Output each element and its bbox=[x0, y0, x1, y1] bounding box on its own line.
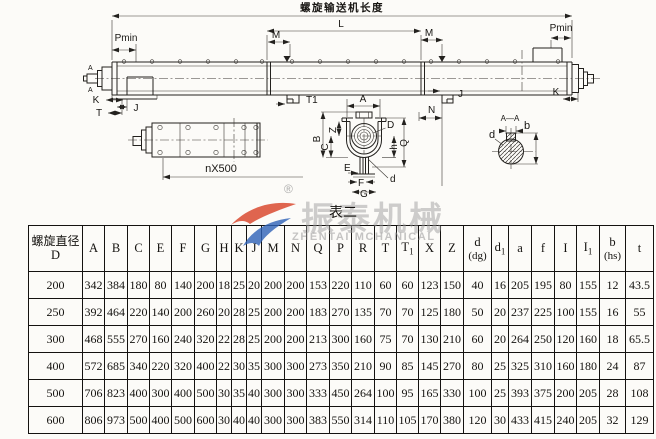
cell: 60 bbox=[464, 326, 492, 353]
cell: 20 bbox=[492, 326, 509, 353]
cell: 200 bbox=[172, 299, 195, 326]
col-header-F: F bbox=[172, 226, 195, 272]
table-row: 3004685552701602403202228252002002133001… bbox=[29, 326, 654, 353]
cell: 555 bbox=[105, 326, 128, 353]
weld-marker bbox=[439, 56, 446, 62]
table-row: 6008069735004005006003040403003003835503… bbox=[29, 407, 654, 434]
cell: 80 bbox=[464, 353, 492, 380]
cell: 160 bbox=[555, 353, 577, 380]
cell: 20 bbox=[217, 299, 232, 326]
cell: 60 bbox=[397, 272, 419, 299]
cell: 70 bbox=[397, 299, 419, 326]
cell: 205 bbox=[577, 380, 600, 407]
cell: 30 bbox=[217, 407, 232, 434]
cell: 108 bbox=[626, 380, 654, 407]
col-header-t: t bbox=[626, 226, 654, 272]
cell: 270 bbox=[330, 299, 352, 326]
cell: 30 bbox=[232, 353, 247, 380]
cell: 320 bbox=[195, 326, 217, 353]
col-header-A: A bbox=[83, 226, 105, 272]
shaft-section-detail: A—A b d bbox=[489, 114, 538, 170]
cell: 40 bbox=[247, 407, 262, 434]
cell: 90 bbox=[375, 353, 397, 380]
col-header-N: N bbox=[285, 226, 307, 272]
cell: 40 bbox=[464, 272, 492, 299]
cell: 105 bbox=[397, 407, 419, 434]
cell: 28 bbox=[600, 380, 626, 407]
cell: 264 bbox=[352, 380, 375, 407]
cell: 220 bbox=[150, 353, 172, 380]
cell: 600 bbox=[195, 407, 217, 434]
dim-pmin-right-label: Pmin bbox=[550, 23, 573, 34]
cell: 823 bbox=[105, 380, 128, 407]
section-cut-A-label: A bbox=[88, 87, 93, 94]
cell: 16 bbox=[600, 299, 626, 326]
cell: 393 bbox=[509, 380, 532, 407]
cell: 380 bbox=[441, 407, 464, 434]
cell: 685 bbox=[105, 353, 128, 380]
cell: 120 bbox=[555, 326, 577, 353]
dim-d-label: d bbox=[489, 129, 495, 141]
cell: 500 bbox=[128, 407, 150, 434]
cell: 300 bbox=[150, 380, 172, 407]
cell: 237 bbox=[509, 299, 532, 326]
cell: 325 bbox=[509, 353, 532, 380]
cell: 95 bbox=[397, 380, 419, 407]
cell: 400 bbox=[150, 407, 172, 434]
dim-C-label: C bbox=[320, 143, 331, 150]
cell: 140 bbox=[172, 272, 195, 299]
cell: 300 bbox=[262, 407, 285, 434]
cell: 550 bbox=[330, 407, 352, 434]
cell: 100 bbox=[555, 299, 577, 326]
cell: 75 bbox=[375, 326, 397, 353]
cell: 170 bbox=[419, 407, 441, 434]
cell: 25 bbox=[492, 353, 509, 380]
cell: 464 bbox=[105, 299, 128, 326]
cell: 123 bbox=[419, 272, 441, 299]
dim-b-label: b bbox=[524, 120, 530, 132]
cell: 706 bbox=[83, 380, 105, 407]
support-foot bbox=[442, 95, 453, 103]
cell: 330 bbox=[441, 380, 464, 407]
cell: 205 bbox=[509, 272, 532, 299]
section-cut-A-label: A bbox=[88, 65, 93, 72]
cell: 240 bbox=[172, 326, 195, 353]
cell: 200 bbox=[262, 272, 285, 299]
col-header-T: T bbox=[375, 226, 397, 272]
cell: 375 bbox=[532, 380, 555, 407]
dim-B-label: B bbox=[312, 135, 323, 142]
cell: 80 bbox=[150, 272, 172, 299]
cell: 383 bbox=[307, 407, 330, 434]
cell: 500 bbox=[172, 407, 195, 434]
row-diameter: 250 bbox=[29, 299, 83, 326]
cell: 40 bbox=[247, 380, 262, 407]
cell: 155 bbox=[577, 299, 600, 326]
cell: 22 bbox=[217, 353, 232, 380]
cell: 160 bbox=[352, 326, 375, 353]
col-header-E: E bbox=[150, 226, 172, 272]
main-assembly-view: 螺旋输送机长度 L M M Pmin Pmin bbox=[84, 1, 601, 186]
dim-J-right-label: J bbox=[458, 89, 463, 100]
cell: 300 bbox=[262, 380, 285, 407]
cell: 50 bbox=[464, 299, 492, 326]
cell: 129 bbox=[626, 407, 654, 434]
cell: 55 bbox=[626, 299, 654, 326]
cell: 200 bbox=[262, 326, 285, 353]
cell: 70 bbox=[397, 326, 419, 353]
cell: 806 bbox=[83, 407, 105, 434]
cell: 350 bbox=[330, 353, 352, 380]
dim-D-label: D bbox=[387, 120, 394, 131]
cell: 260 bbox=[195, 299, 217, 326]
dim-A-label: A bbox=[360, 94, 367, 105]
table-row: 2003423841808014020018252020020015322011… bbox=[29, 272, 654, 299]
left-outlet bbox=[112, 77, 157, 99]
cell: 300 bbox=[330, 326, 352, 353]
cell: 240 bbox=[555, 407, 577, 434]
cell: 225 bbox=[532, 299, 555, 326]
table-caption: 表二 bbox=[329, 202, 357, 222]
cell: 150 bbox=[441, 272, 464, 299]
dim-G-label: G bbox=[360, 189, 368, 200]
cell: 220 bbox=[330, 272, 352, 299]
cell: 100 bbox=[464, 380, 492, 407]
dim-J-left-label: J bbox=[134, 103, 139, 114]
cell: 25 bbox=[247, 326, 262, 353]
cell: 30 bbox=[492, 407, 509, 434]
cell: 300 bbox=[285, 407, 307, 434]
dim-d-label: d bbox=[390, 174, 396, 185]
overall-length-label: 螺旋输送机长度 bbox=[300, 1, 384, 14]
cell: 300 bbox=[285, 353, 307, 380]
cell: 210 bbox=[441, 326, 464, 353]
cell: 400 bbox=[128, 380, 150, 407]
col-header-X: X bbox=[419, 226, 441, 272]
cell: 80 bbox=[555, 272, 577, 299]
cell: 25 bbox=[492, 380, 509, 407]
cell: 320 bbox=[172, 353, 195, 380]
col-header-J: J bbox=[247, 226, 262, 272]
dim-Z-label: Z bbox=[328, 127, 339, 133]
scanned-conveyor-spec-sheet: 螺旋输送机长度 L M M Pmin Pmin bbox=[0, 0, 656, 439]
cell: 433 bbox=[509, 407, 532, 434]
cell: 32 bbox=[600, 407, 626, 434]
cell: 153 bbox=[307, 272, 330, 299]
table-row: 5007068234003004005003035403003003334502… bbox=[29, 380, 654, 407]
col-header-C: C bbox=[128, 226, 150, 272]
cell: 130 bbox=[419, 326, 441, 353]
col-header-R: R bbox=[352, 226, 375, 272]
section-title: A—A bbox=[501, 114, 520, 123]
dim-L-label: L bbox=[338, 19, 344, 30]
col-header-P: P bbox=[330, 226, 352, 272]
cell: 18 bbox=[600, 326, 626, 353]
cell: 110 bbox=[375, 407, 397, 434]
col-header-Q: Q bbox=[307, 226, 330, 272]
cell: 65.5 bbox=[626, 326, 654, 353]
cell: 270 bbox=[128, 326, 150, 353]
cell: 500 bbox=[195, 380, 217, 407]
cell: 135 bbox=[352, 299, 375, 326]
dim-E-label: E bbox=[344, 163, 351, 174]
cell: 205 bbox=[577, 407, 600, 434]
cell: 210 bbox=[352, 353, 375, 380]
dim-T-left-label: T bbox=[96, 108, 102, 119]
cell: 12 bbox=[600, 272, 626, 299]
cell: 30 bbox=[217, 380, 232, 407]
cell: 400 bbox=[195, 353, 217, 380]
col-header-d1: d1 bbox=[492, 226, 509, 272]
cell: 40 bbox=[232, 407, 247, 434]
col-header-I: I bbox=[555, 226, 577, 272]
drive-unit-detail: nX500 bbox=[128, 118, 303, 180]
cell: 155 bbox=[577, 272, 600, 299]
cell: 110 bbox=[352, 272, 375, 299]
spec-table-container: 螺旋直径DABCEFGHKJMNQPRTT1XZd(dg)d1afII1b(hs… bbox=[28, 225, 654, 434]
cell: 20 bbox=[492, 299, 509, 326]
cell: 213 bbox=[307, 326, 330, 353]
cell: 35 bbox=[232, 380, 247, 407]
support-foot bbox=[287, 95, 299, 103]
cell: 314 bbox=[352, 407, 375, 434]
cell: 22 bbox=[217, 326, 232, 353]
cell: 87 bbox=[626, 353, 654, 380]
cell: 20 bbox=[247, 272, 262, 299]
spec-table: 螺旋直径DABCEFGHKJMNQPRTT1XZd(dg)d1afII1b(hs… bbox=[28, 225, 654, 434]
col-header-G: G bbox=[195, 226, 217, 272]
cell: 85 bbox=[397, 353, 419, 380]
cell: 25 bbox=[247, 299, 262, 326]
cell: 415 bbox=[532, 407, 555, 434]
cell: 28 bbox=[232, 299, 247, 326]
cell: 100 bbox=[375, 380, 397, 407]
dim-pmin-left-label: Pmin bbox=[115, 33, 138, 44]
weld-marker bbox=[284, 56, 291, 62]
cell: 450 bbox=[330, 380, 352, 407]
dim-Q-label: Q bbox=[399, 139, 410, 147]
col-header-B: B bbox=[105, 226, 128, 272]
cell: 270 bbox=[441, 353, 464, 380]
cell: 973 bbox=[105, 407, 128, 434]
cell: 340 bbox=[128, 353, 150, 380]
cell: 180 bbox=[128, 272, 150, 299]
cell: 250 bbox=[532, 326, 555, 353]
cell: 125 bbox=[419, 299, 441, 326]
cell: 120 bbox=[464, 407, 492, 434]
dim-F-label: F bbox=[358, 178, 364, 189]
cell: 333 bbox=[307, 380, 330, 407]
cell: 572 bbox=[83, 353, 105, 380]
col-header-a: a bbox=[509, 226, 532, 272]
left-end-bearing: A A bbox=[84, 65, 113, 94]
col-header-M: M bbox=[262, 226, 285, 272]
cell: 70 bbox=[375, 299, 397, 326]
dim-K-left-label: K bbox=[93, 95, 100, 106]
dim-T1-label: T1 bbox=[306, 95, 318, 106]
cell: 200 bbox=[262, 299, 285, 326]
col-header-d: d(dg) bbox=[464, 226, 492, 272]
cell: 200 bbox=[285, 326, 307, 353]
cell: 25 bbox=[232, 272, 247, 299]
col-header-diameter: 螺旋直径D bbox=[29, 226, 83, 272]
dim-M-left-label: M bbox=[272, 30, 280, 41]
cell: 400 bbox=[172, 380, 195, 407]
cell: 24 bbox=[600, 353, 626, 380]
cell: 200 bbox=[285, 299, 307, 326]
cell: 160 bbox=[577, 326, 600, 353]
cell: 18 bbox=[217, 272, 232, 299]
cell: 35 bbox=[247, 353, 262, 380]
technical-drawing: 螺旋输送机长度 L M M Pmin Pmin bbox=[0, 0, 656, 225]
col-header-Z: Z bbox=[441, 226, 464, 272]
cell: 180 bbox=[441, 299, 464, 326]
cell: 140 bbox=[150, 299, 172, 326]
cell: 43.5 bbox=[626, 272, 654, 299]
dim-N-label: N bbox=[428, 105, 435, 116]
cell: 60 bbox=[375, 272, 397, 299]
cell: 200 bbox=[555, 380, 577, 407]
trough-cross-section: D B Z C Q h E bbox=[312, 112, 410, 200]
cell: 200 bbox=[195, 272, 217, 299]
cell: 16 bbox=[492, 272, 509, 299]
cell: 300 bbox=[285, 380, 307, 407]
col-header-K: K bbox=[232, 226, 247, 272]
row-diameter: 300 bbox=[29, 326, 83, 353]
col-header-H: H bbox=[217, 226, 232, 272]
cell: 342 bbox=[83, 272, 105, 299]
row-diameter: 400 bbox=[29, 353, 83, 380]
cell: 145 bbox=[419, 353, 441, 380]
cell: 273 bbox=[307, 353, 330, 380]
cell: 200 bbox=[285, 272, 307, 299]
col-header-T1: T1 bbox=[397, 226, 419, 272]
dim-h-label: h bbox=[389, 144, 400, 150]
col-header-b: b(hs) bbox=[600, 226, 626, 272]
cell: 28 bbox=[232, 326, 247, 353]
cell: 468 bbox=[83, 326, 105, 353]
cell: 220 bbox=[128, 299, 150, 326]
cell: 310 bbox=[532, 353, 555, 380]
dim-nx500-label: nX500 bbox=[205, 163, 237, 175]
cell: 384 bbox=[105, 272, 128, 299]
cell: 392 bbox=[83, 299, 105, 326]
col-header-f: f bbox=[532, 226, 555, 272]
row-diameter: 600 bbox=[29, 407, 83, 434]
table-row: 2503924642201402002602028252002001832701… bbox=[29, 299, 654, 326]
dim-M-right-label: M bbox=[425, 28, 433, 39]
dim-K-right-label: K bbox=[553, 87, 560, 98]
cell: 264 bbox=[509, 326, 532, 353]
cell: 195 bbox=[532, 272, 555, 299]
cell: 165 bbox=[419, 380, 441, 407]
cell: 180 bbox=[577, 353, 600, 380]
cell: 300 bbox=[262, 353, 285, 380]
table-row: 4005726853402203204002230353003002733502… bbox=[29, 353, 654, 380]
row-diameter: 200 bbox=[29, 272, 83, 299]
col-header-I1: I1 bbox=[577, 226, 600, 272]
cell: 183 bbox=[307, 299, 330, 326]
row-diameter: 500 bbox=[29, 380, 83, 407]
header-row: 螺旋直径DABCEFGHKJMNQPRTT1XZd(dg)d1afII1b(hs… bbox=[29, 226, 654, 272]
cell: 160 bbox=[150, 326, 172, 353]
